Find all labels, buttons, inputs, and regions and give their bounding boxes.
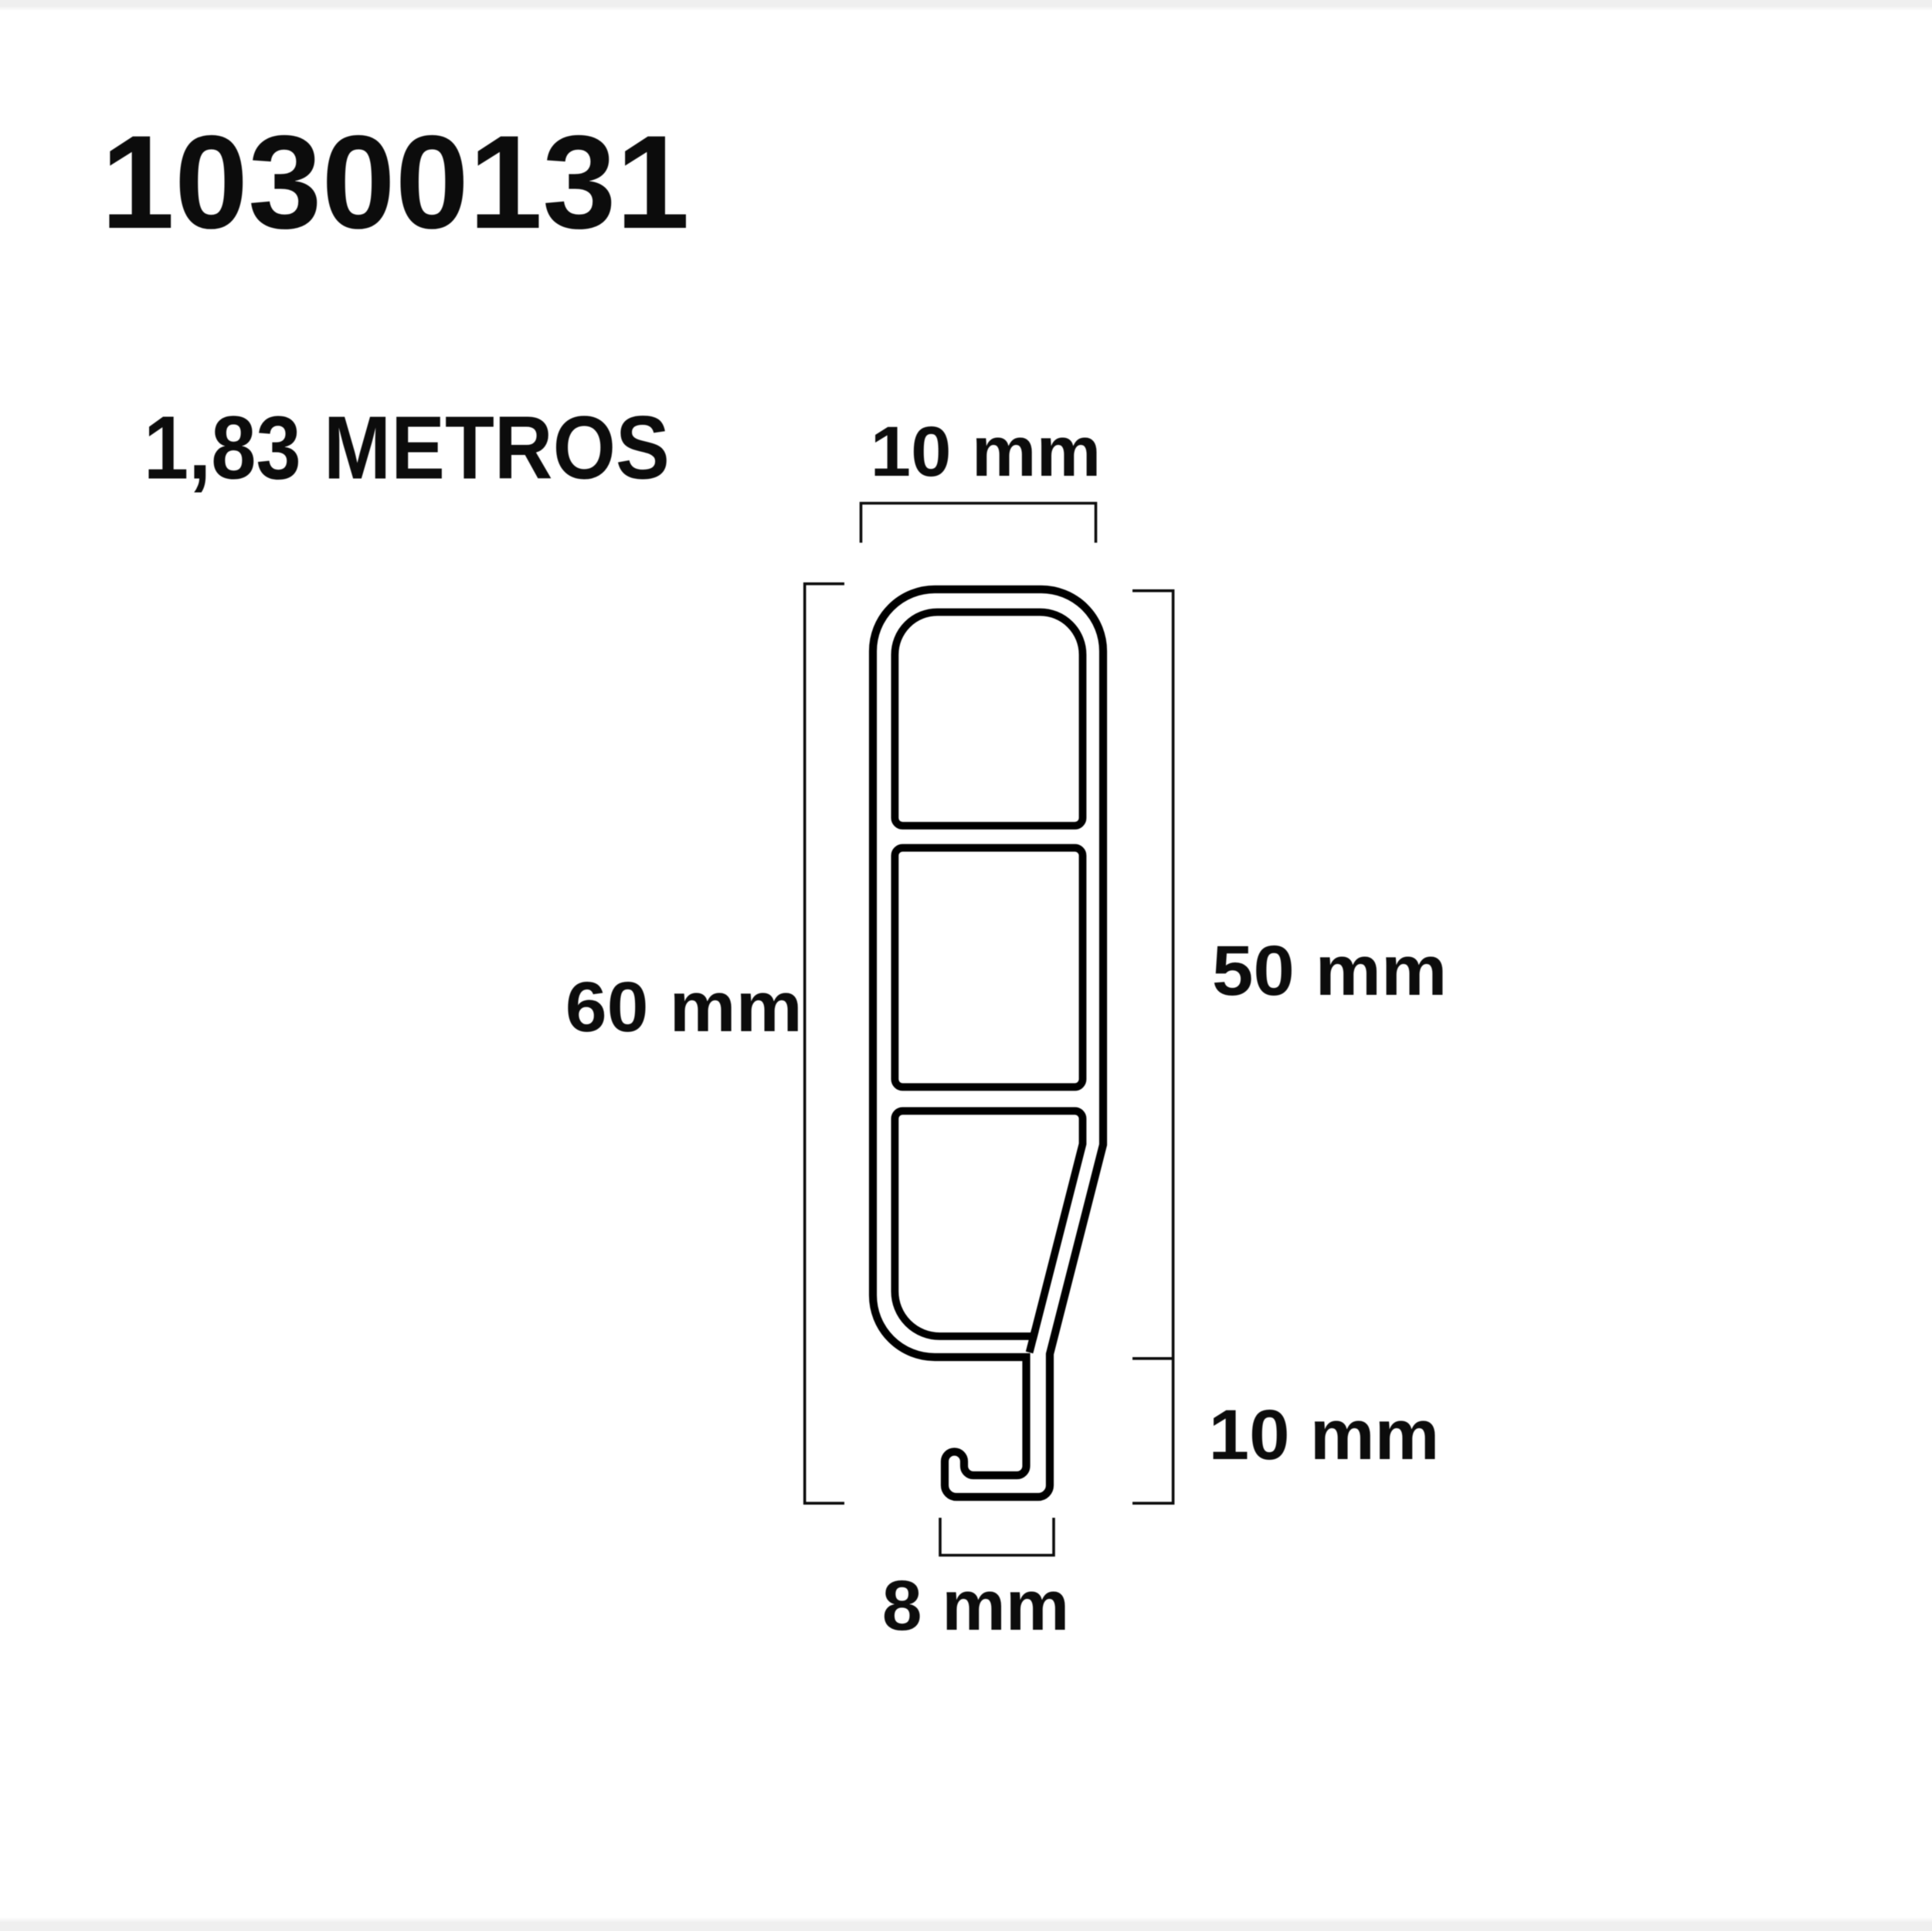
- svg-text:8 mm: 8 mm: [882, 1566, 1069, 1645]
- svg-text:50 mm: 50 mm: [1212, 932, 1447, 1010]
- svg-text:10 mm: 10 mm: [1209, 1396, 1440, 1475]
- svg-text:1,83 METROS: 1,83 METROS: [144, 398, 670, 498]
- svg-text:10 mm: 10 mm: [871, 412, 1102, 491]
- svg-text:10300131: 10300131: [101, 108, 690, 256]
- svg-text:60 mm: 60 mm: [565, 968, 803, 1047]
